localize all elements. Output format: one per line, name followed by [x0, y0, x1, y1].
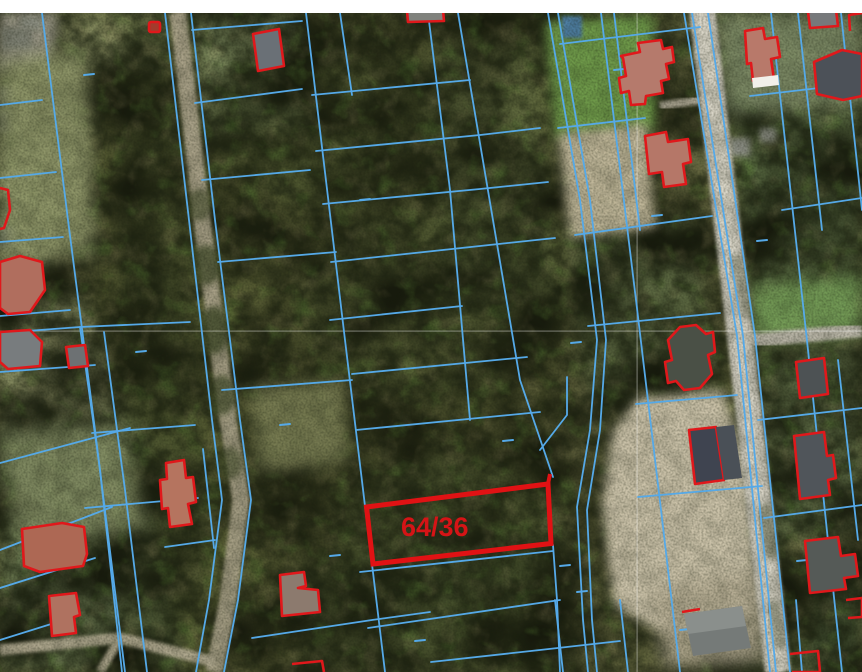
svg-text:64/36: 64/36 — [401, 512, 469, 542]
